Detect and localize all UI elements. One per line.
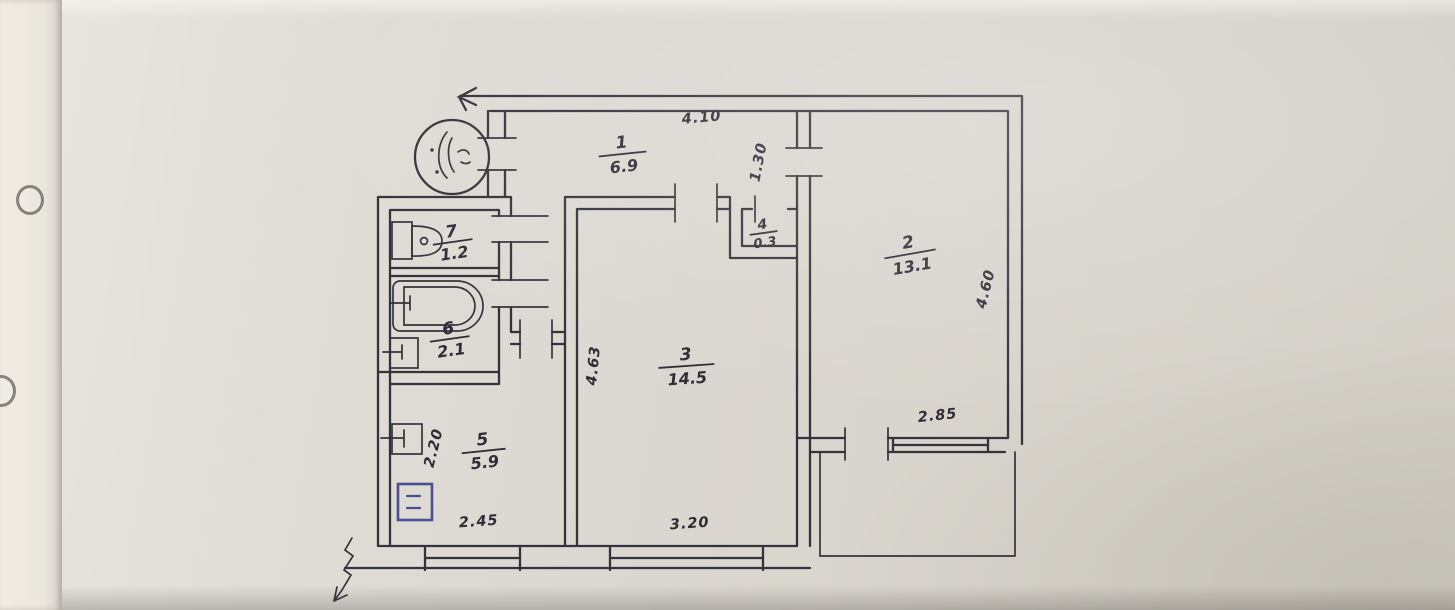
toilet-icon (392, 222, 442, 259)
room-number: 1 (615, 132, 629, 153)
kitchen-sink-icon (381, 424, 422, 454)
dimension-kitchen-left: 2.20 (422, 427, 447, 469)
shaft-symbol-circle (415, 120, 489, 194)
room-number: 4 (756, 216, 769, 233)
room-area: 13.1 (891, 253, 933, 279)
bathtub-icon (390, 281, 483, 331)
room-label-3: 3 14.5 (657, 343, 716, 390)
room-number: 7 (444, 221, 459, 242)
floor-plan-drawing: 1 6.9 7 1.2 6 2.1 5 5.9 3 14.5 2 13.1 (0, 0, 1455, 610)
room-label-2: 2 13.1 (881, 229, 940, 280)
entrance-arrow-icon (459, 88, 476, 110)
dimension-hall-top: 4.10 (680, 108, 722, 127)
room-area: 1.2 (439, 242, 470, 265)
dimension-room3-left: 4.63 (584, 345, 604, 387)
room-number: 3 (679, 345, 692, 366)
room-area: 0.3 (753, 234, 778, 252)
room-number: 6 (441, 318, 456, 339)
room-area: 2.1 (436, 339, 467, 362)
room-label-6: 6 2.1 (427, 316, 472, 362)
door-opening-ticks (478, 138, 888, 460)
room-label-1: 1 6.9 (597, 131, 649, 179)
dimension-hall-opening: 1.30 (747, 141, 770, 183)
room-area: 14.5 (667, 368, 708, 390)
room-number: 2 (901, 232, 916, 254)
room-label-7: 7 1.2 (430, 219, 475, 265)
washbasin-icon (383, 338, 418, 368)
dimension-room3-bottom: 3.20 (669, 515, 710, 534)
dimension-kitchen-bottom: 2.45 (458, 513, 499, 532)
dimension-room2-right: 4.60 (973, 268, 998, 311)
room-area: 5.9 (470, 451, 500, 473)
break-line-arrow-icon (334, 538, 353, 601)
balcony-outline (820, 452, 1015, 556)
room-number: 5 (476, 429, 490, 450)
room-label-5: 5 5.9 (460, 428, 508, 474)
floor-plan-document: 1 6.9 7 1.2 6 2.1 5 5.9 3 14.5 2 13.1 (0, 0, 1455, 610)
stove-icon (398, 484, 432, 520)
room-area: 6.9 (609, 155, 639, 177)
dimension-room2-bottom: 2.85 (917, 406, 958, 426)
